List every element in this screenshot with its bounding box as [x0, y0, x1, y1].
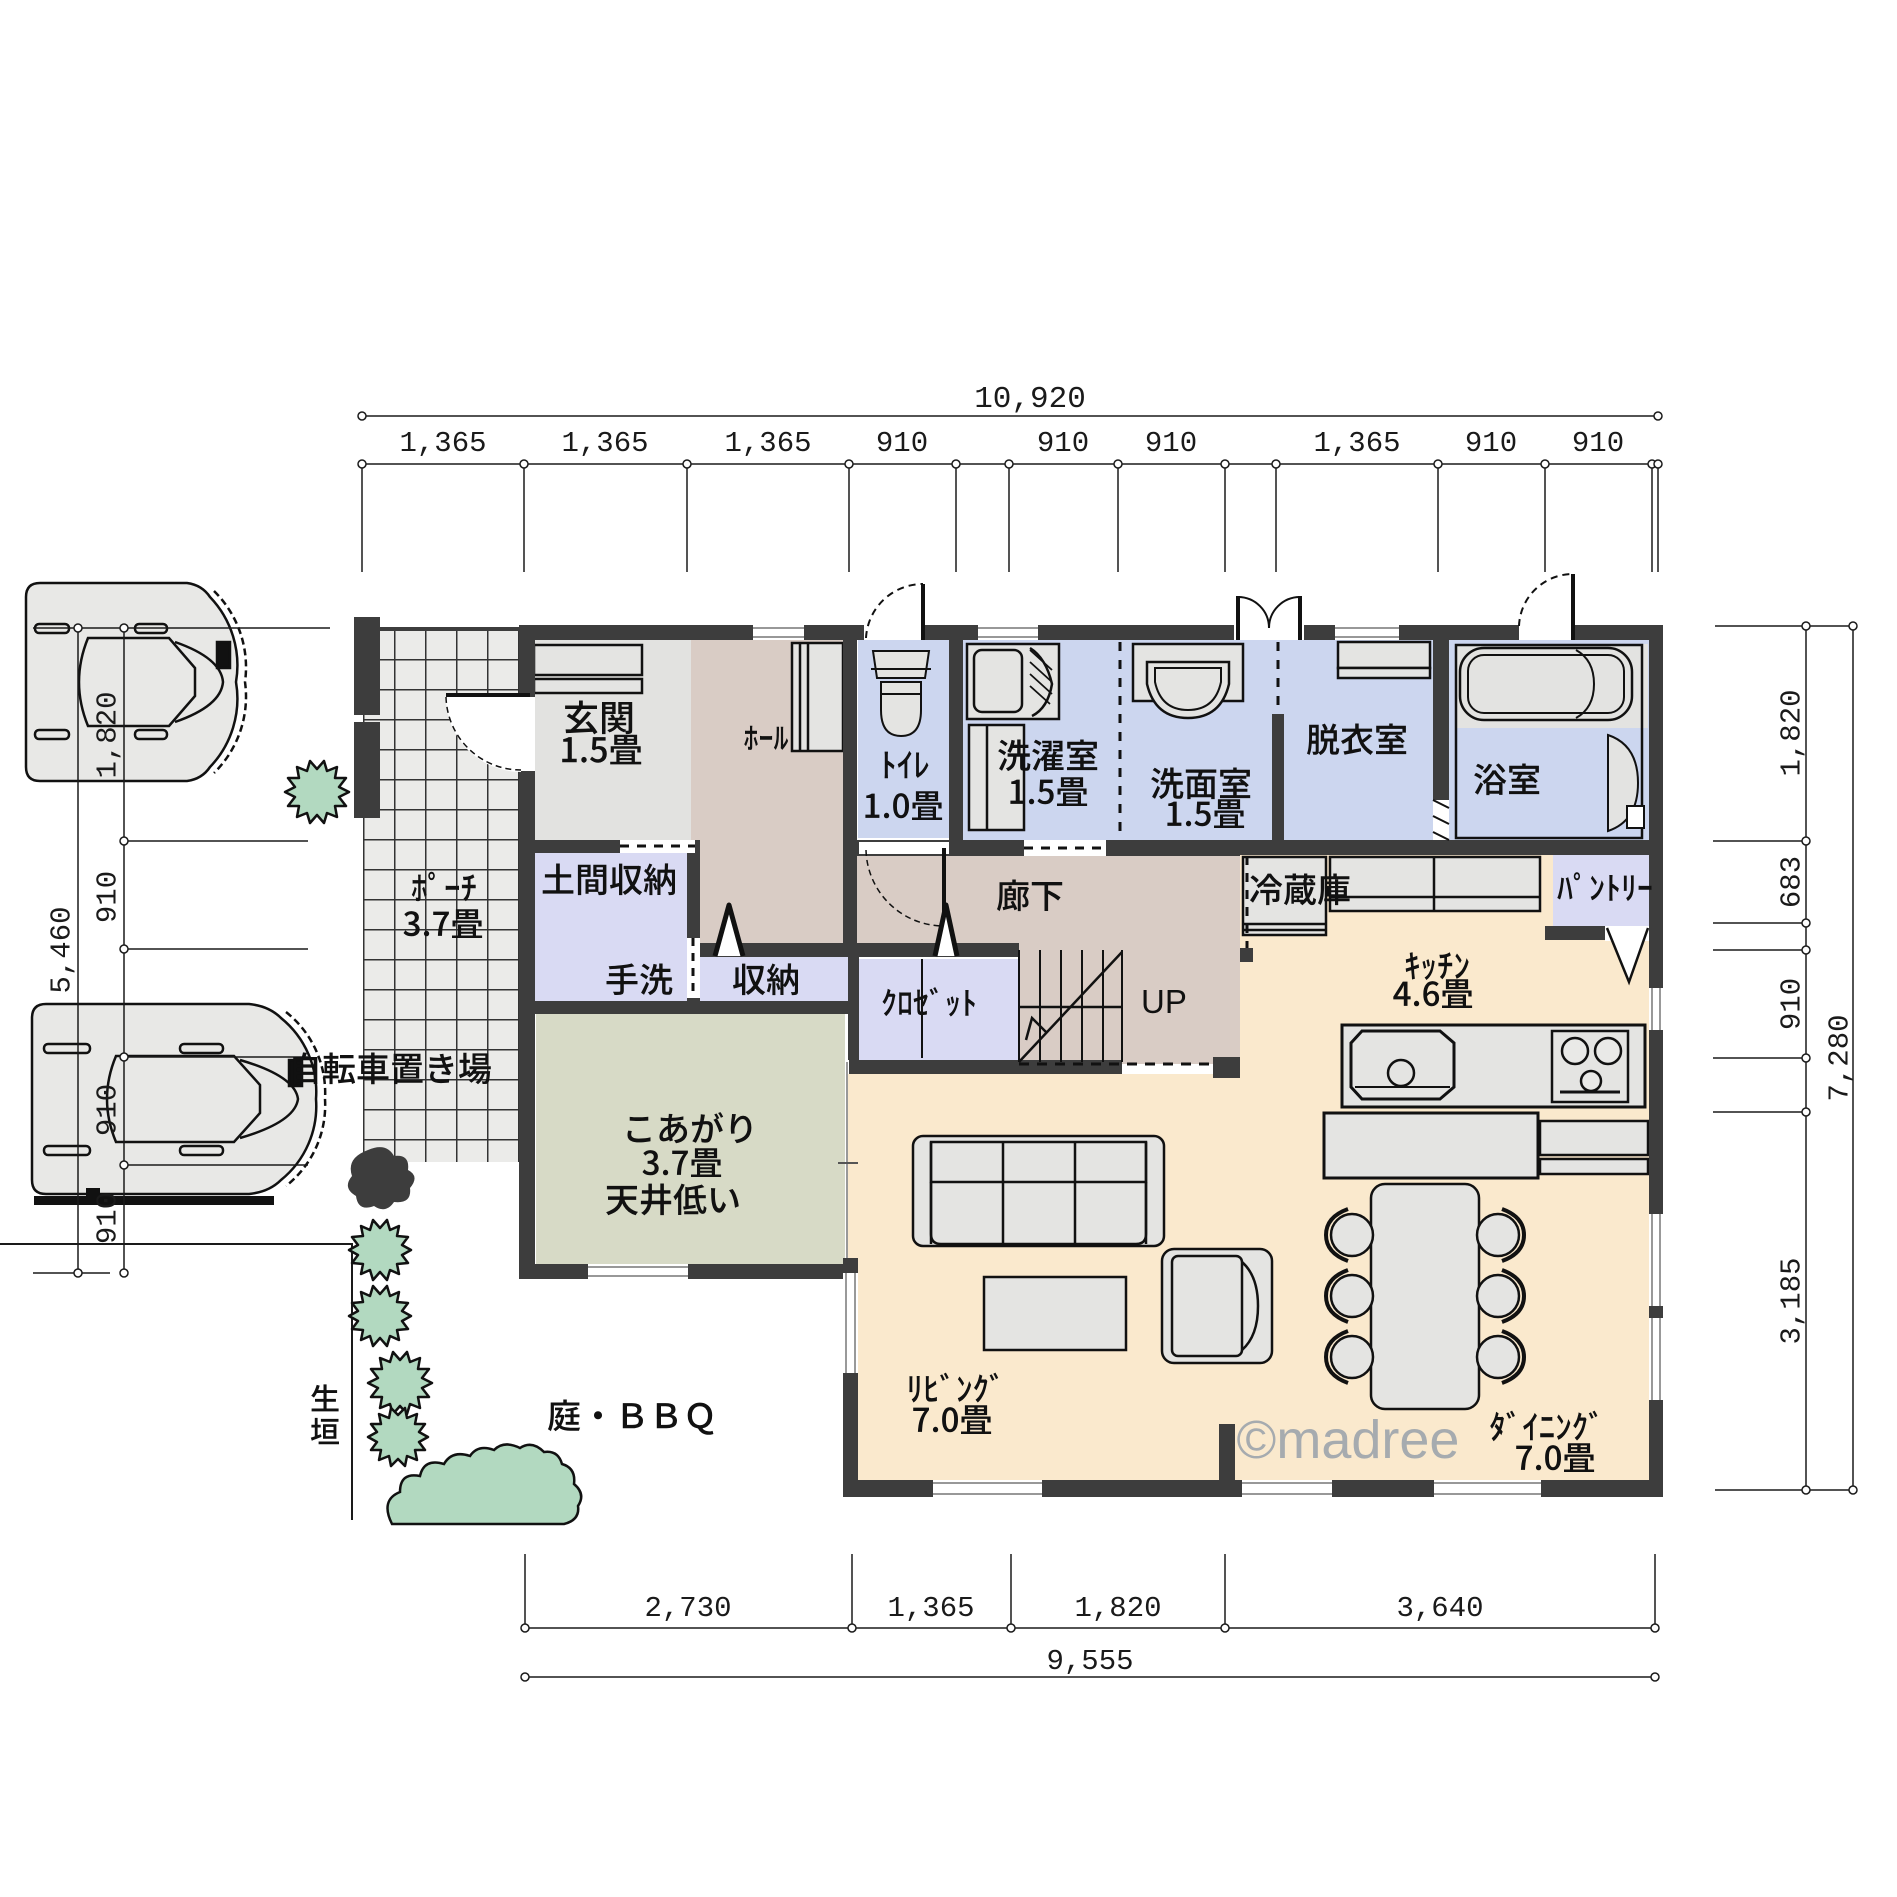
svg-text:9,555: 9,555 — [1046, 1645, 1133, 1678]
svg-text:910: 910 — [92, 871, 125, 923]
svg-text:1,365: 1,365 — [399, 427, 486, 460]
svg-text:1,820: 1,820 — [92, 691, 125, 778]
svg-text:910: 910 — [1776, 978, 1809, 1030]
svg-text:910: 910 — [1145, 427, 1197, 460]
svg-text:910: 910 — [92, 1192, 125, 1244]
svg-text:683: 683 — [1776, 856, 1809, 908]
svg-text:3,640: 3,640 — [1396, 1592, 1483, 1625]
svg-text:1,365: 1,365 — [561, 427, 648, 460]
svg-text:910: 910 — [92, 1084, 125, 1136]
svg-text:910: 910 — [1465, 427, 1517, 460]
svg-text:1,820: 1,820 — [1776, 689, 1809, 776]
svg-text:©madree: ©madree — [1237, 1410, 1460, 1470]
svg-text:1,820: 1,820 — [1074, 1592, 1161, 1625]
svg-text:1,365: 1,365 — [1313, 427, 1400, 460]
svg-text:2,730: 2,730 — [644, 1592, 731, 1625]
svg-text:7,280: 7,280 — [1824, 1014, 1857, 1101]
svg-text:5,460: 5,460 — [46, 906, 79, 993]
svg-text:910: 910 — [1572, 427, 1624, 460]
svg-text:910: 910 — [1037, 427, 1089, 460]
svg-text:3,185: 3,185 — [1776, 1257, 1809, 1344]
svg-text:910: 910 — [876, 427, 928, 460]
svg-text:1,365: 1,365 — [724, 427, 811, 460]
svg-text:10,920: 10,920 — [974, 382, 1086, 417]
svg-text:1,365: 1,365 — [887, 1592, 974, 1625]
svg-text:UP: UP — [1141, 983, 1187, 1020]
